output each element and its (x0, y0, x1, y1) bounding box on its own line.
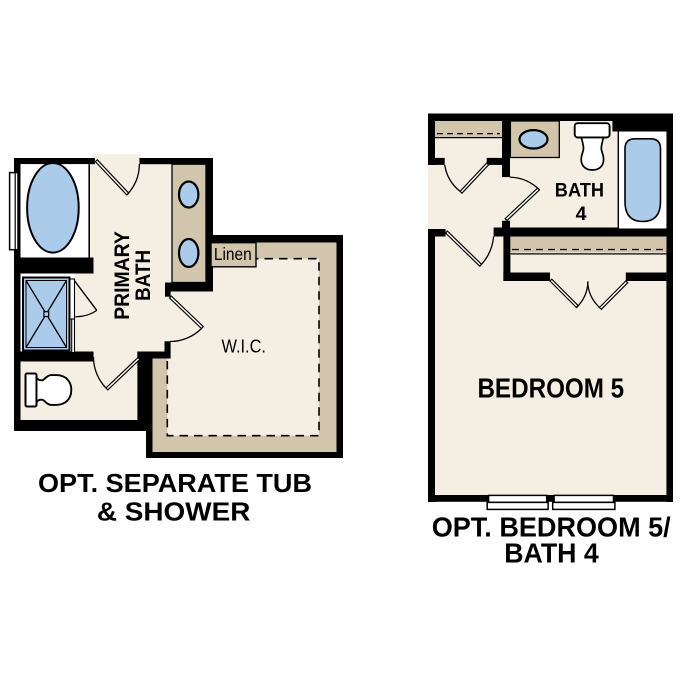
svg-text:& SHOWER: & SHOWER (97, 498, 251, 526)
svg-text:BATH: BATH (555, 179, 604, 201)
svg-text:BATH 4: BATH 4 (504, 538, 599, 569)
svg-text:Linen: Linen (214, 244, 252, 264)
svg-text:BEDROOM 5: BEDROOM 5 (477, 372, 624, 403)
svg-text:BATH: BATH (131, 250, 155, 301)
svg-text:4: 4 (576, 203, 587, 225)
svg-text:W.I.C.: W.I.C. (221, 336, 266, 356)
svg-text:OPT. SEPARATE TUB: OPT. SEPARATE TUB (38, 470, 312, 498)
